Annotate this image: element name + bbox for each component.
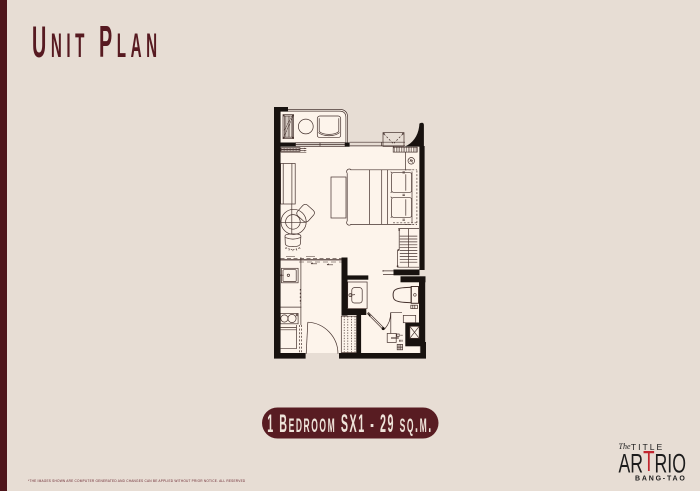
svg-text:ARTRIO: ARTRIO [619, 446, 687, 478]
svg-text:1 BEDROOM SX1 - 29 SQ.M.: 1 BEDROOM SX1 - 29 SQ.M. [267, 411, 433, 438]
svg-text:BANG-TAO: BANG-TAO [635, 476, 687, 483]
